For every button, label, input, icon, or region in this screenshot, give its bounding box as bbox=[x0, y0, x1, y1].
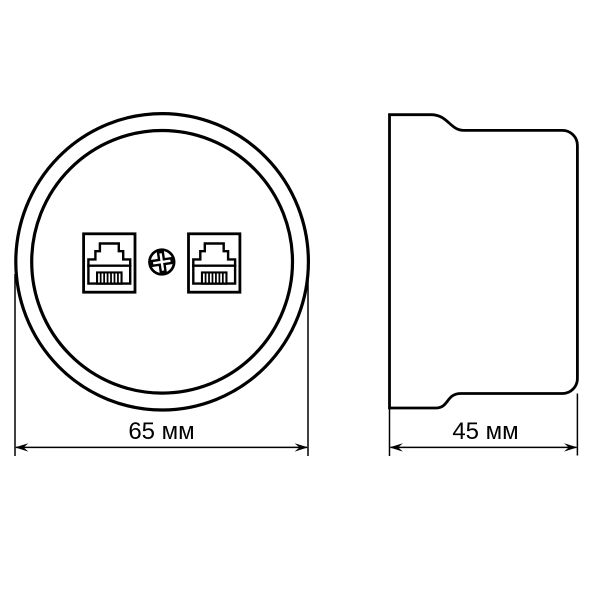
svg-text:65 мм: 65 мм bbox=[128, 418, 194, 445]
svg-text:45 мм: 45 мм bbox=[452, 418, 518, 445]
